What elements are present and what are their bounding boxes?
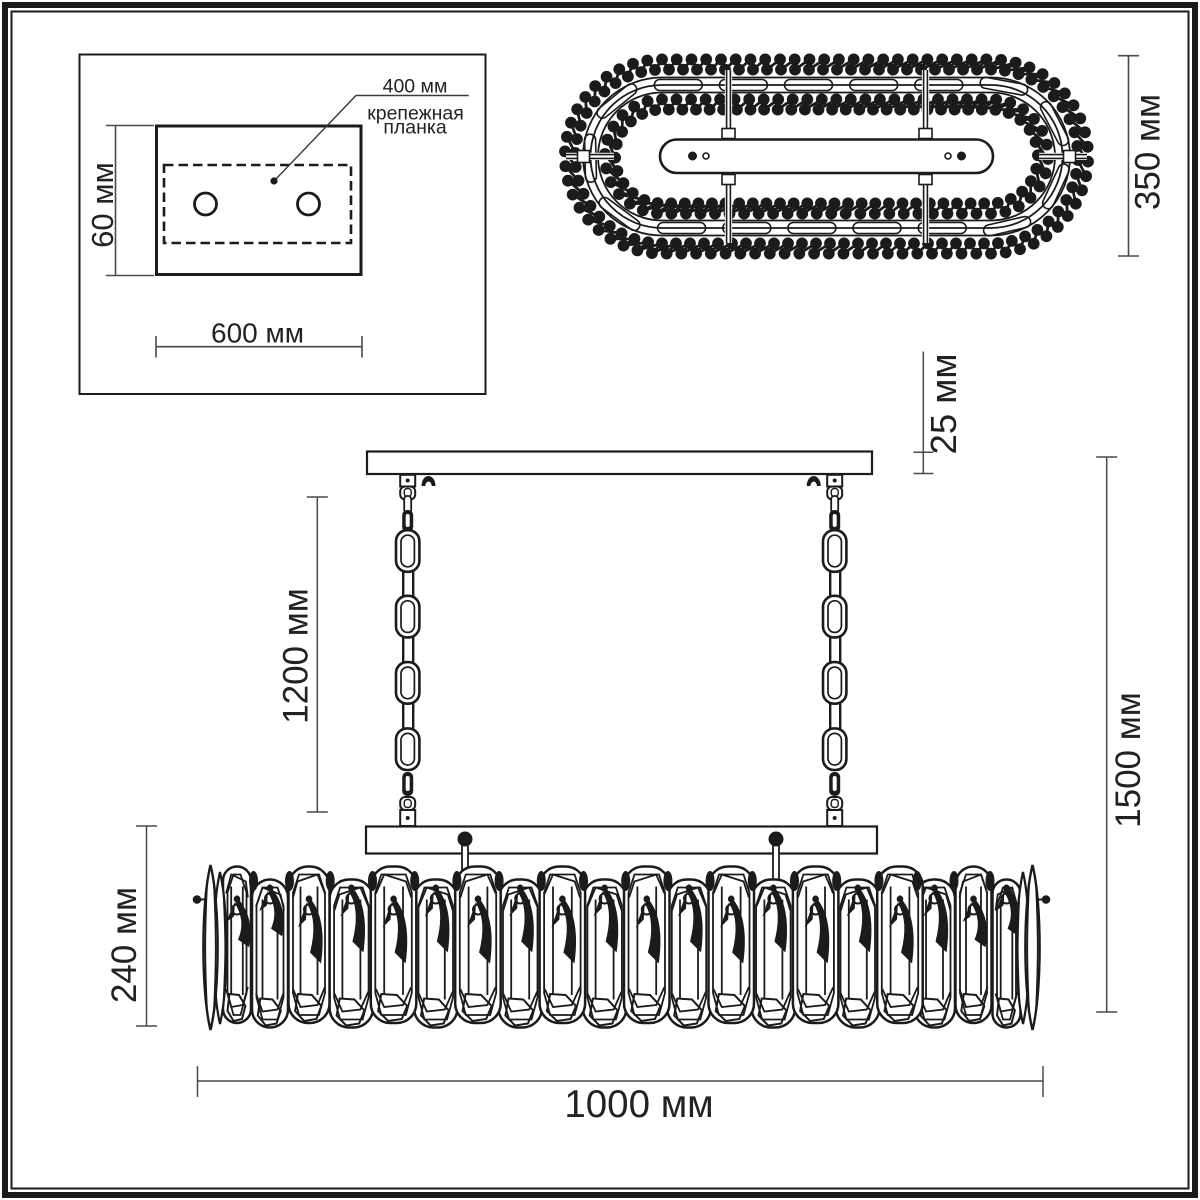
svg-text:60 мм: 60 мм — [85, 162, 120, 248]
svg-text:1500 мм: 1500 мм — [1109, 692, 1148, 828]
svg-text:25 мм: 25 мм — [923, 354, 964, 455]
svg-text:600 мм: 600 мм — [211, 318, 304, 349]
svg-text:240 мм: 240 мм — [105, 887, 144, 1003]
svg-text:400 мм: 400 мм — [383, 76, 448, 98]
svg-text:1000 мм: 1000 мм — [564, 1083, 713, 1126]
svg-text:1200 мм: 1200 мм — [277, 588, 316, 724]
svg-text:планка: планка — [383, 117, 447, 139]
svg-text:350 мм: 350 мм — [1129, 94, 1168, 210]
